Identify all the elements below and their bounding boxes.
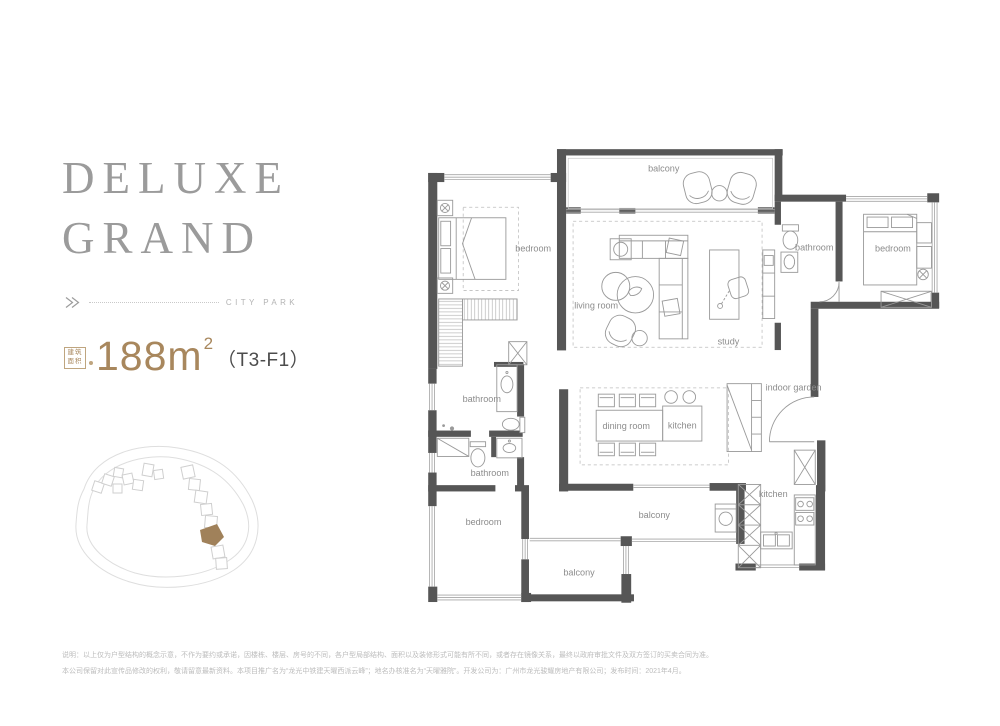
area-label-cn-2: 面积 — [68, 358, 83, 367]
disclaimer: 说明：以上仅为户型结构的概念示意，不作为要约或承诺，因楼栋、楼层、房号的不同，各… — [62, 648, 713, 680]
room-label-kitchen: kitchen — [759, 489, 788, 499]
room-label-balcony-top: balcony — [648, 164, 680, 174]
title-line-1: DELUXE — [62, 148, 290, 208]
brochure-page: DELUXE GRAND CITY PARK 建筑 面积 188 m 2 （T3… — [0, 0, 1000, 726]
room-label-bathroom-mid-upper: bathroom — [463, 394, 501, 404]
floor-plan-walls — [428, 149, 939, 603]
area-unit: m — [167, 340, 202, 374]
room-label-bathroom-mid-lower: bathroom — [471, 468, 509, 478]
tagline-row: CITY PARK — [64, 296, 298, 309]
area-label-box: 建筑 面积 — [64, 347, 86, 369]
unit-code: （T3-F1） — [217, 345, 309, 372]
site-buildings — [92, 463, 228, 569]
room-label-dining-room: dining room — [603, 421, 650, 431]
double-chevron-icon — [64, 296, 82, 309]
room-label-study: study — [718, 336, 740, 346]
title-line-2: GRAND — [62, 208, 290, 268]
floor-plan-furniture — [437, 170, 931, 568]
area-value: 188 — [96, 340, 167, 374]
site-highlighted-building — [200, 524, 224, 546]
room-label-indoor-garden: indoor garden — [766, 383, 822, 393]
floor-plan-room-labels: balcony bedroom living room study bathro… — [463, 164, 911, 578]
disclaimer-line-2: 本公司保留对此宣传品修改的权利，敬请留意最新资料。本项目推广名为“龙光中铁建天曜… — [62, 664, 713, 680]
room-label-bedroom-right: bedroom — [875, 243, 911, 253]
room-label-kitchen-island: kitchen — [668, 420, 697, 430]
page-title: DELUXE GRAND — [62, 148, 290, 268]
room-label-bedroom-top-left: bedroom — [515, 243, 551, 253]
area-superscript: 2 — [204, 334, 213, 354]
site-boundary — [76, 446, 258, 587]
area-row: 建筑 面积 188 m 2 （T3-F1） — [64, 330, 309, 374]
floor-plan: balcony bedroom living room study bathro… — [410, 135, 950, 605]
room-label-living-room: living room — [574, 301, 618, 311]
gold-dot — [89, 361, 93, 365]
site-plan — [66, 434, 276, 599]
room-label-bedroom-bottom-left: bedroom — [466, 517, 502, 527]
dotted-divider — [89, 302, 219, 303]
disclaimer-line-1: 说明：以上仅为户型结构的概念示意，不作为要约或承诺，因楼栋、楼层、房号的不同，各… — [62, 648, 713, 664]
room-label-balcony-bottom: balcony — [563, 567, 595, 577]
room-label-balcony-mid: balcony — [639, 510, 671, 520]
area-label-cn-1: 建筑 — [68, 349, 83, 358]
room-label-bathroom-right: bathroom — [795, 243, 833, 253]
tagline-text: CITY PARK — [226, 298, 298, 307]
